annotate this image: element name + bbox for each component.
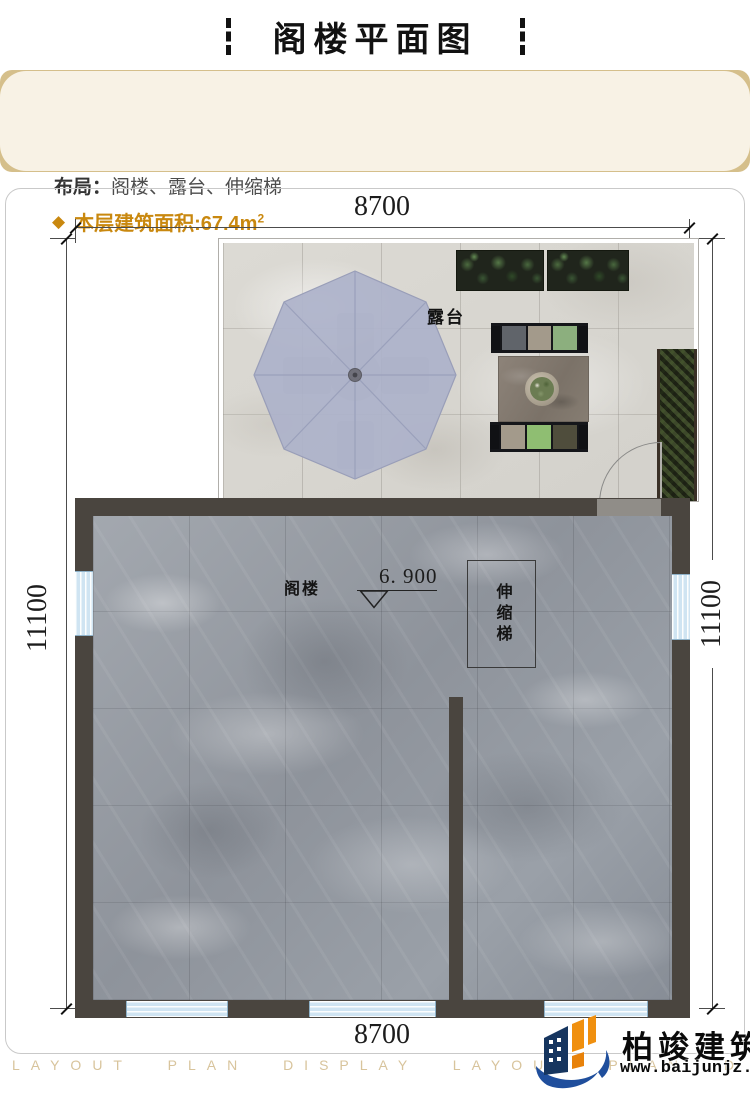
attic-label: 阁楼 (284, 575, 320, 599)
table-plant-icon (525, 372, 559, 406)
dimension-top: 8700 (340, 191, 424, 223)
door-threshold (597, 499, 661, 516)
dimension-line-right (712, 668, 713, 1008)
dimension-left: 11100 (24, 573, 52, 663)
window (672, 574, 690, 640)
logo: 柏竣建筑 www.baijunjz.com (528, 1014, 750, 1093)
planter-box (547, 250, 629, 291)
title-dash-right-icon (520, 18, 525, 55)
hedge-strip (657, 349, 697, 501)
tea-table-rug (498, 356, 589, 422)
dimension-line-right (712, 238, 713, 560)
tree-icon (621, 243, 699, 355)
bench (491, 323, 588, 353)
level-marker-icon (359, 590, 389, 609)
page-title: 阁楼平面图 (273, 12, 478, 61)
logo-building-icon (528, 1014, 618, 1090)
patio-umbrella-icon (253, 269, 458, 483)
header: 阁楼平面图 (0, 10, 750, 62)
planter-box (456, 250, 544, 291)
title-dash-left-icon (226, 18, 231, 55)
dimension-right: 11100 (698, 569, 726, 659)
dimension-line-left (66, 238, 67, 1008)
dimension-line-top (75, 227, 690, 228)
telescopic-ladder-box: 伸缩梯 (467, 560, 536, 668)
window (126, 1001, 228, 1017)
dimension-bottom: 8700 (340, 1019, 424, 1051)
extension-line (75, 219, 76, 243)
window (75, 571, 93, 636)
page: 阁楼平面图 布局：阁楼、露台、伸缩梯 ◆ 本层建筑面积:67.4m2 8700 … (0, 0, 750, 1093)
extension-line (50, 238, 76, 239)
info-card: 布局：阁楼、露台、伸缩梯 ◆ 本层建筑面积:67.4m2 (0, 71, 750, 171)
extension-line (50, 1008, 76, 1009)
level-value: 6. 900 (379, 564, 438, 589)
logo-url: www.baijunjz.com (620, 1059, 750, 1078)
door-leaf (660, 442, 662, 504)
window (309, 1001, 436, 1017)
telescopic-ladder-label: 伸缩梯 (490, 583, 514, 646)
bench (490, 422, 588, 452)
terrace-area: 露台 (218, 238, 699, 502)
terrace-label: 露台 (427, 303, 465, 328)
wall-divider (449, 697, 463, 1018)
